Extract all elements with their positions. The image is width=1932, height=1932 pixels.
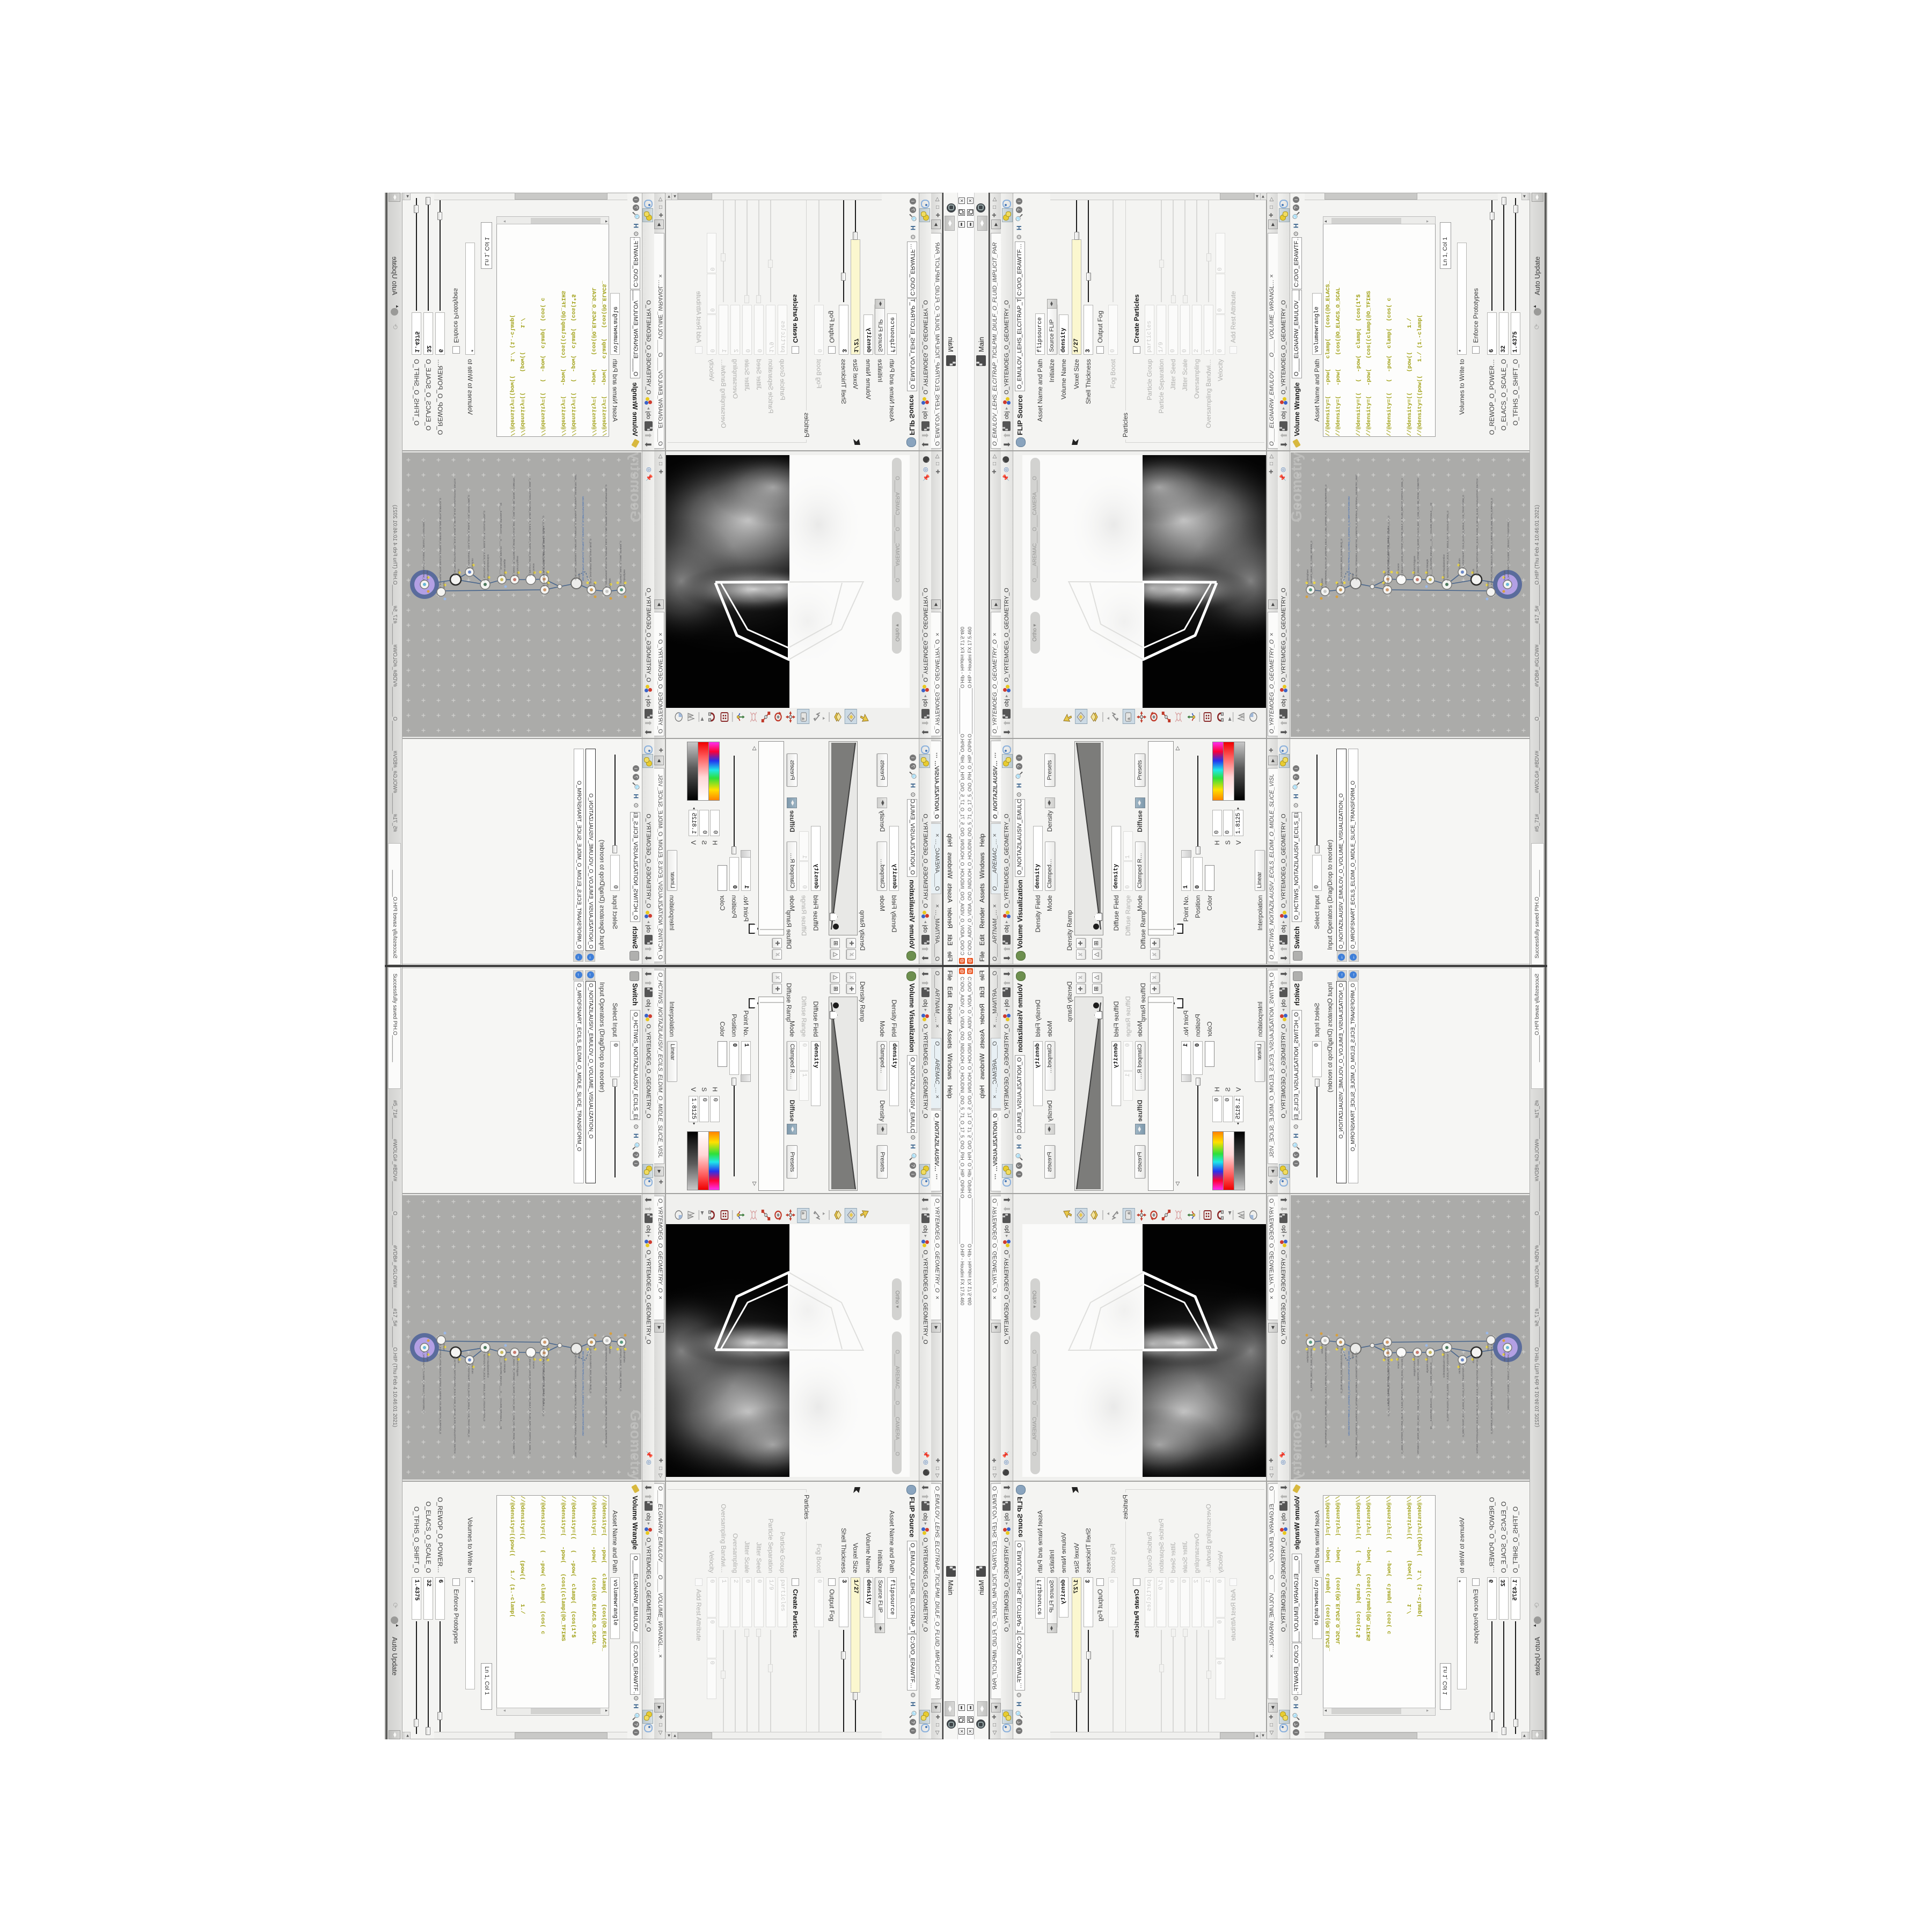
svg-text:PolyWire: PolyWire — [609, 578, 611, 588]
svg-text:Transform: Transform — [471, 1363, 474, 1374]
svg-text:FLIP Source: FLIP Source — [1397, 563, 1400, 576]
svg-text:O_EMARFERIW_NOGYLOP_EREHPS_EBU: O_EMARFERIW_NOGYLOP_EREHPS_EBUC_O_CUBE_S… — [605, 1344, 608, 1448]
svg-text:Merge: Merge — [1487, 581, 1489, 588]
svg-text:O_EMARFERIW_NOGYLOP_EREHPS_EBU: O_EMARFERIW_NOGYLOP_EREHPS_EBUC_O_CUBE_S… — [1324, 1344, 1327, 1448]
svg-text:FLIP Source: FLIP Source — [1397, 1356, 1400, 1369]
svg-text:O_ELIF_DAOLNWOD_BDG_ELBALJBUQ_: O_ELIF_DAOLNWOD_BDG_ELBALJBUQ_O — [589, 1345, 592, 1394]
svg-text:JBO.MO3.PETS.TEPELS.D_AO.REG_O: JBO.MO3.PETS.TEPELS.D_AO.REG_O_GENUSS_O_… — [1348, 1351, 1350, 1436]
svg-text:O_MROFSNART_ECILS_ELDIM_O_MIDL: O_MROFSNART_ECILS_ELDIM_O_MIDLE_SLICE_TR… — [1462, 495, 1465, 569]
svg-text:O_ELIF_DAOLNWOD_BDG_ELBALJBUQ_: O_ELIF_DAOLNWOD_BDG_ELBALJBUQ_O — [1340, 538, 1343, 587]
svg-text:O_MROFSNART_TLUSER_O_RESULT_TR: O_MROFSNART_TLUSER_O_RESULT_TRANSFORM_O — [1507, 1351, 1510, 1413]
svg-text:O_HCTIWS_YRTEMOEG_LANRETXE_LAN: O_HCTIWS_YRTEMOEG_LANRETXE_LANRETNI_O_IN… — [1355, 1352, 1358, 1458]
svg-text:Switch: Switch — [1472, 1356, 1475, 1363]
svg-text:O_NOITAZILAUSIV_ECILS_O_MIDLE_: O_NOITAZILAUSIV_ECILS_O_MIDLE_SLICE_VISU… — [1446, 510, 1449, 581]
svg-text:O_PILC_FLAH_MOTTOB_O_BOTTOM_HA: O_PILC_FLAH_MOTTOB_O_BOTTOM_HALF_CLIP_O — [1387, 528, 1389, 587]
svg-text:Transform: Transform — [471, 558, 474, 569]
svg-text:O____ELGNARW_EMULOV____O____VO: O____ELGNARW_EMULOV____O____VOLUME_WRANG… — [1430, 1356, 1432, 1430]
svg-text:Switch: Switch — [457, 569, 460, 576]
svg-text:O_MROFSNART_TLUSER_O_RESULT_TR: O_MROFSNART_TLUSER_O_RESULT_TRANSFORM_O — [1507, 519, 1510, 581]
svg-text:Clip: Clip — [546, 582, 549, 587]
svg-text:Clip: Clip — [546, 1356, 548, 1360]
svg-text:Clip: Clip — [1383, 1345, 1386, 1350]
svg-text:O_EMULOV_LEHS_ELCITRAP_TICILPM: O_EMULOV_LEHS_ELCITRAP_TICILPMI_DIULF_O_… — [1401, 1356, 1403, 1454]
svg-text:an_CubeSphere: an_CubeSphere — [1306, 569, 1309, 587]
svg-text:VDB from Polygons: VDB from Polygons — [516, 555, 519, 576]
svg-text:O_SNOGLOP_YRTEMOEG_MORF_EMULOV: O_SNOGLOP_YRTEMOEG_MORF_EMULOV_BDV_O_VDB… — [1417, 478, 1419, 576]
svg-text:O____ELGNARW_EMULOV____O____VO: O____ELGNARW_EMULOV____O____VOLUME_WRANG… — [500, 1356, 502, 1430]
svg-text:Merge: Merge — [443, 1344, 445, 1351]
svg-text:O_EMARFERIW_NOGYLOP_EREHPS_EBU: O_EMARFERIW_NOGYLOP_EREHPS_EBUC_O_CUBE_S… — [605, 484, 608, 588]
svg-text:File: File — [1336, 582, 1339, 587]
svg-text:Volume Wrangle: Volume Wrangle — [503, 1356, 506, 1373]
svg-text:Switch: Switch — [1472, 569, 1475, 576]
svg-text:PolyWire: PolyWire — [1321, 578, 1323, 588]
svg-text:O_HCTIWS_NOITAZILAUSIV_ECILS_E: O_HCTIWS_NOITAZILAUSIV_ECILS_ELDIM_O_MID… — [453, 1356, 456, 1453]
svg-text:O_SNOGLOP_YRTEMOEG_MORF_EMULOV: O_SNOGLOP_YRTEMOEG_MORF_EMULOV_BDV_O_VDB… — [1417, 1356, 1419, 1454]
svg-text:O_ECAFRUS_HTIW_EMULOV_EGREM_O_: O_ECAFRUS_HTIW_EMULOV_EGREM_O_MERGE_VOLU… — [1490, 1344, 1493, 1435]
svg-text:O_MROFSNART_ECILS_ELDIM_O_MIDL: O_MROFSNART_ECILS_ELDIM_O_MIDLE_SLICE_TR… — [467, 495, 470, 569]
svg-text:O_HCTIWS_NOITAZILAUSIV_ECILS_E: O_HCTIWS_NOITAZILAUSIV_ECILS_ELDIM_O_MID… — [453, 479, 456, 576]
svg-text:FLIP Source: FLIP Source — [532, 563, 535, 576]
svg-text:Transform: Transform — [1503, 1351, 1506, 1362]
svg-text:O_NOITAZILAUSIV_ECILS_O_MIDLE_: O_NOITAZILAUSIV_ECILS_O_MIDLE_SLICE_VISU… — [483, 1351, 486, 1422]
svg-text:O_MROFSNART_ECILS_ELDIM_O_MIDL: O_MROFSNART_ECILS_ELDIM_O_MIDLE_SLICE_TR… — [467, 1363, 470, 1437]
svg-text:Transform: Transform — [1503, 570, 1506, 581]
svg-text:Switch: Switch — [457, 1356, 460, 1363]
svg-text:Clip: Clip — [546, 572, 548, 576]
svg-text:Switch: Switch — [1351, 573, 1354, 580]
svg-text:Transform: Transform — [426, 570, 429, 581]
svg-text:O_HCTIWS_YRTEMOEG_LANRETXE_LAN: O_HCTIWS_YRTEMOEG_LANRETXE_LANRETNI_O_IN… — [1355, 474, 1358, 580]
svg-text:Volume VisualizationSlice: Volume VisualizationSlice — [1443, 1351, 1445, 1378]
svg-text:JBO.MO3.PETS.TEPELS.D_AO.REG_O: JBO.MO3.PETS.TEPELS.D_AO.REG_O_GENUSS_O_… — [582, 496, 584, 581]
svg-text:O_ECAFRUS_HTIW_EMULOV_EGREM_O_: O_ECAFRUS_HTIW_EMULOV_EGREM_O_MERGE_VOLU… — [439, 497, 442, 588]
svg-text:an_CubeSphere: an_CubeSphere — [1306, 1345, 1309, 1363]
svg-text:VDB from Polygons: VDB from Polygons — [1413, 1356, 1416, 1377]
svg-text:O_EREHPS_EBUC_O_CUBE_SPHERE_O: O_EREHPS_EBUC_O_CUBE_SPHERE_O — [1310, 540, 1313, 587]
svg-text:O_ELIF_DAOLNWOD_BDG_ELBALJBUQ_: O_ELIF_DAOLNWOD_BDG_ELBALJBUQ_O — [1340, 1345, 1343, 1394]
svg-text:Volume Wrangle: Volume Wrangle — [1426, 559, 1429, 576]
svg-text:Geometry: Geometry — [1291, 452, 1305, 522]
svg-text:O_HCTIWS_NOITAZILAUSIV_ECILS_E: O_HCTIWS_NOITAZILAUSIV_ECILS_ELDIM_O_MID… — [1476, 479, 1479, 576]
svg-text:O_HCTIWS_YRTEMOEG_LANRETXE_LAN: O_HCTIWS_YRTEMOEG_LANRETXE_LANRETNI_O_IN… — [574, 474, 577, 580]
svg-text:Transform: Transform — [1458, 558, 1461, 569]
svg-text:O____ELGNARW_EMULOV____O____VO: O____ELGNARW_EMULOV____O____VOLUME_WRANG… — [500, 502, 502, 576]
svg-text:an_CubeSphere: an_CubeSphere — [623, 569, 626, 587]
svg-text:O_ECAFRUS_HTIW_EMULOV_EGREM_O_: O_ECAFRUS_HTIW_EMULOV_EGREM_O_MERGE_VOLU… — [439, 1344, 442, 1435]
svg-text:Merge: Merge — [443, 581, 445, 588]
svg-text:O_SNOGLOP_YRTEMOEG_MORF_EMULOV: O_SNOGLOP_YRTEMOEG_MORF_EMULOV_BDV_O_VDB… — [513, 478, 515, 576]
svg-text:Clip: Clip — [1384, 572, 1386, 576]
svg-text:O_EREHPS_EBUC_O_CUBE_SPHERE_O: O_EREHPS_EBUC_O_CUBE_SPHERE_O — [1310, 1345, 1313, 1392]
svg-text:O_ECAFRUS_HTIW_EMULOV_EGREM_O_: O_ECAFRUS_HTIW_EMULOV_EGREM_O_MERGE_VOLU… — [1490, 497, 1493, 588]
svg-text:Volume VisualizationSlice: Volume VisualizationSlice — [1443, 554, 1445, 581]
svg-text:Merge: Merge — [1487, 1344, 1489, 1351]
svg-text:O_EMULOV_LEHS_ELCITRAP_TICILPM: O_EMULOV_LEHS_ELCITRAP_TICILPMI_DIULF_O_… — [529, 1356, 531, 1454]
svg-text:a: a — [801, 718, 805, 720]
svg-text:O_MROFSNART_TLUSER_O_RESULT_TR: O_MROFSNART_TLUSER_O_RESULT_TRANSFORM_O — [422, 1351, 425, 1413]
svg-text:O_MROFSNART_ECILS_ELDIM_O_MIDL: O_MROFSNART_ECILS_ELDIM_O_MIDLE_SLICE_TR… — [1462, 1363, 1465, 1437]
svg-text:O_PILC_FLAH_MOTTOB_O_BOTTOM_HA: O_PILC_FLAH_MOTTOB_O_BOTTOM_HALF_CLIP_O — [1387, 1345, 1389, 1404]
svg-text:VDB from Polygons: VDB from Polygons — [516, 1356, 519, 1377]
svg-text:VDB from Polygons: VDB from Polygons — [1413, 555, 1416, 576]
svg-text:FLIP Source: FLIP Source — [532, 1356, 535, 1369]
svg-text:Clip: Clip — [1384, 1356, 1386, 1360]
svg-text:O_NOITAZILAUSIV_ECILS_O_MIDLE_: O_NOITAZILAUSIV_ECILS_O_MIDLE_SLICE_VISU… — [483, 510, 486, 581]
svg-text:O_HCTIWS_NOITAZILAUSIV_ECILS_E: O_HCTIWS_NOITAZILAUSIV_ECILS_ELDIM_O_MID… — [1476, 1356, 1479, 1453]
svg-text:JBO.MO3.PETS.TEPELS.D_AO.REG_O: JBO.MO3.PETS.TEPELS.D_AO.REG_O_GENUSS_O_… — [582, 1351, 584, 1436]
svg-text:O_PILC_FLAH_MOTTOB_O_BOTTOM_HA: O_PILC_FLAH_MOTTOB_O_BOTTOM_HALF_CLIP_O — [543, 1345, 545, 1404]
svg-text:Geometry: Geometry — [627, 1410, 641, 1480]
svg-text:Switch: Switch — [578, 1352, 581, 1359]
svg-text:a: a — [801, 1212, 805, 1214]
svg-text:File: File — [593, 1345, 596, 1350]
svg-text:O_NOITAZILAUSIV_ECILS_O_MIDLE_: O_NOITAZILAUSIV_ECILS_O_MIDLE_SLICE_VISU… — [1446, 1351, 1449, 1422]
svg-text:Volume VisualizationSlice: Volume VisualizationSlice — [487, 554, 489, 581]
svg-text:O_EREHPS_EBUC_O_CUBE_SPHERE_O: O_EREHPS_EBUC_O_CUBE_SPHERE_O — [619, 1345, 622, 1392]
svg-text:a: a — [1126, 718, 1131, 720]
svg-text:O_PILC_FLAH_MOTTOB_O_BOTTOM_HA: O_PILC_FLAH_MOTTOB_O_BOTTOM_HALF_CLIP_O — [543, 528, 545, 587]
svg-text:Switch: Switch — [578, 573, 581, 580]
svg-text:Transform: Transform — [426, 1351, 429, 1362]
svg-text:Transform: Transform — [1458, 1363, 1461, 1374]
svg-text:Clip: Clip — [1383, 582, 1386, 587]
svg-text:File: File — [593, 582, 596, 587]
svg-text:an_CubeSphere: an_CubeSphere — [623, 1345, 626, 1363]
svg-text:Volume Wrangle: Volume Wrangle — [503, 559, 506, 576]
svg-text:O____ELGNARW_EMULOV____O____VO: O____ELGNARW_EMULOV____O____VOLUME_WRANG… — [1430, 502, 1432, 576]
svg-text:Switch: Switch — [1351, 1352, 1354, 1359]
svg-text:PolyWire: PolyWire — [1321, 1344, 1323, 1354]
svg-text:a: a — [1126, 1212, 1131, 1214]
svg-text:PolyWire: PolyWire — [609, 1344, 611, 1354]
svg-text:O_EMULOV_LEHS_ELCITRAP_TICILPM: O_EMULOV_LEHS_ELCITRAP_TICILPMI_DIULF_O_… — [1401, 478, 1403, 576]
svg-text:O_EMULOV_LEHS_ELCITRAP_TICILPM: O_EMULOV_LEHS_ELCITRAP_TICILPMI_DIULF_O_… — [529, 478, 531, 576]
svg-text:O_SNOGLOP_YRTEMOEG_MORF_EMULOV: O_SNOGLOP_YRTEMOEG_MORF_EMULOV_BDV_O_VDB… — [513, 1356, 515, 1454]
svg-text:Geometry: Geometry — [1291, 1410, 1305, 1480]
svg-text:Volume VisualizationSlice: Volume VisualizationSlice — [487, 1351, 489, 1378]
svg-text:File: File — [1336, 1345, 1339, 1350]
svg-text:Volume Wrangle: Volume Wrangle — [1426, 1356, 1429, 1373]
svg-text:Clip: Clip — [546, 1345, 549, 1350]
svg-text:O_EMARFERIW_NOGYLOP_EREHPS_EBU: O_EMARFERIW_NOGYLOP_EREHPS_EBUC_O_CUBE_S… — [1324, 484, 1327, 588]
svg-text:O_ELIF_DAOLNWOD_BDG_ELBALJBUQ_: O_ELIF_DAOLNWOD_BDG_ELBALJBUQ_O — [589, 538, 592, 587]
svg-text:O_MROFSNART_TLUSER_O_RESULT_TR: O_MROFSNART_TLUSER_O_RESULT_TRANSFORM_O — [422, 519, 425, 581]
svg-text:O_HCTIWS_YRTEMOEG_LANRETXE_LAN: O_HCTIWS_YRTEMOEG_LANRETXE_LANRETNI_O_IN… — [574, 1352, 577, 1458]
svg-text:O_EREHPS_EBUC_O_CUBE_SPHERE_O: O_EREHPS_EBUC_O_CUBE_SPHERE_O — [619, 540, 622, 587]
svg-text:Geometry: Geometry — [627, 452, 641, 522]
svg-text:JBO.MO3.PETS.TEPELS.D_AO.REG_O: JBO.MO3.PETS.TEPELS.D_AO.REG_O_GENUSS_O_… — [1348, 496, 1350, 581]
